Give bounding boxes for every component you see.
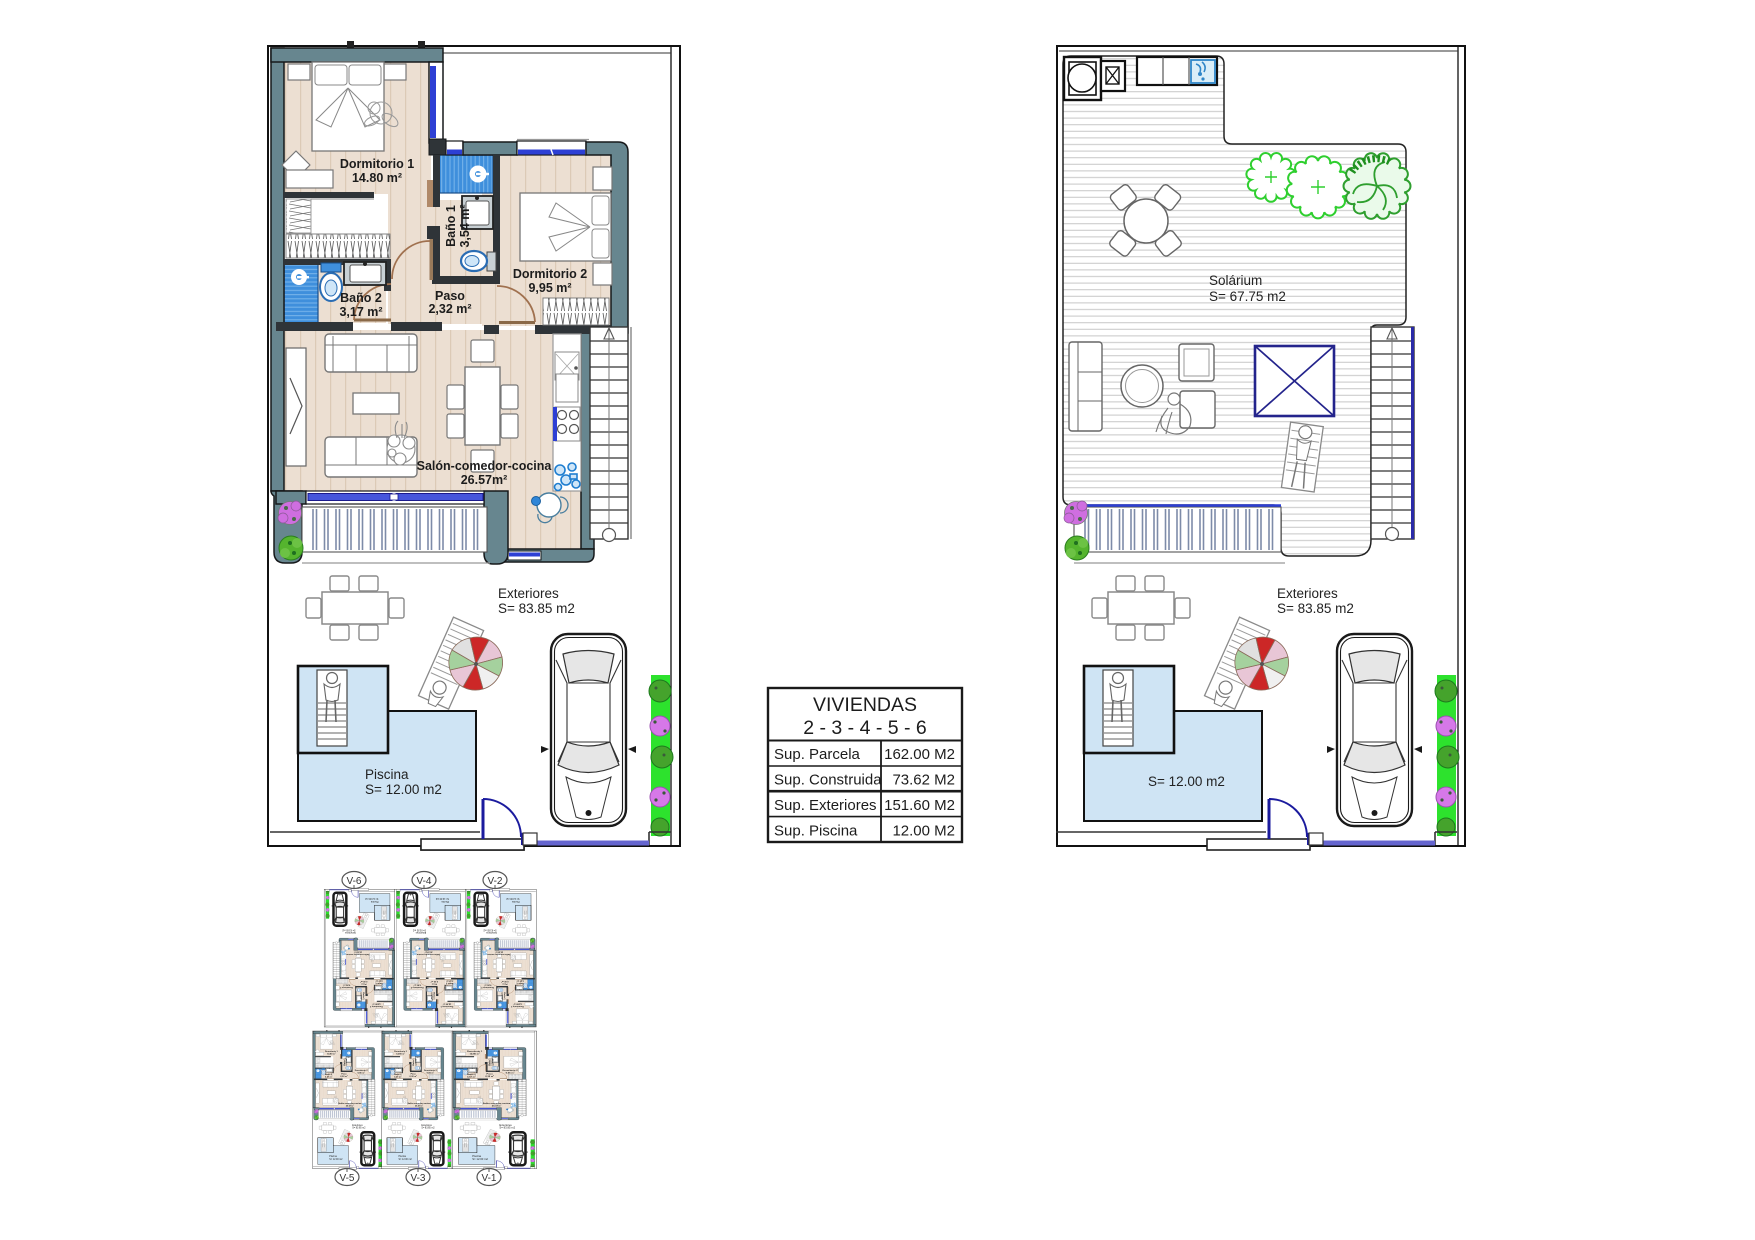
- svg-text:VIVIENDAS: VIVIENDAS: [813, 694, 917, 716]
- svg-text:9,95 m²: 9,95 m²: [528, 281, 571, 295]
- svg-text:26.57m²: 26.57m²: [461, 473, 508, 487]
- svg-text:Baño 1: Baño 1: [444, 205, 458, 247]
- svg-text:73.62 M2: 73.62 M2: [892, 772, 955, 789]
- svg-text:Sup. Exteriores: Sup. Exteriores: [774, 797, 877, 814]
- svg-text:Exteriores: Exteriores: [1277, 586, 1338, 601]
- svg-text:Exteriores: Exteriores: [498, 586, 559, 601]
- svg-text:S= 83.85 m2: S= 83.85 m2: [498, 601, 575, 616]
- svg-text:2 - 3 - 4 - 5 - 6: 2 - 3 - 4 - 5 - 6: [803, 717, 927, 739]
- svg-text:Piscina: Piscina: [365, 767, 409, 782]
- svg-text:Sup. Parcela: Sup. Parcela: [774, 746, 861, 763]
- svg-text:Dormitorio 2: Dormitorio 2: [513, 267, 587, 281]
- svg-text:S= 12.00 m2: S= 12.00 m2: [365, 782, 442, 797]
- svg-text:V-1: V-1: [481, 1173, 496, 1184]
- svg-text:S= 12.00 m2: S= 12.00 m2: [1148, 774, 1225, 789]
- svg-text:V-5: V-5: [339, 1173, 354, 1184]
- svg-text:S= 83.85 m2: S= 83.85 m2: [1277, 601, 1354, 616]
- svg-text:V-3: V-3: [410, 1173, 425, 1184]
- svg-text:151.60 M2: 151.60 M2: [884, 797, 955, 814]
- svg-text:Salón-comedor-cocina: Salón-comedor-cocina: [417, 459, 553, 473]
- svg-text:Dormitorio 1: Dormitorio 1: [340, 157, 414, 171]
- svg-text:3,17 m²: 3,17 m²: [339, 305, 382, 319]
- svg-text:Solárium: Solárium: [1209, 273, 1262, 288]
- svg-text:2,32 m²: 2,32 m²: [428, 302, 471, 316]
- svg-text:S= 67.75 m2: S= 67.75 m2: [1209, 289, 1286, 304]
- svg-text:Sup. Piscina: Sup. Piscina: [774, 823, 858, 840]
- svg-text:3,54 m²: 3,54 m²: [458, 204, 472, 247]
- svg-text:Baño 2: Baño 2: [340, 291, 382, 305]
- svg-text:Paso: Paso: [435, 289, 465, 303]
- svg-text:12.00 M2: 12.00 M2: [892, 823, 955, 840]
- svg-text:162.00 M2: 162.00 M2: [884, 746, 955, 763]
- svg-text:Sup. Construida: Sup. Construida: [774, 772, 882, 789]
- svg-text:14.80 m²: 14.80 m²: [352, 171, 402, 185]
